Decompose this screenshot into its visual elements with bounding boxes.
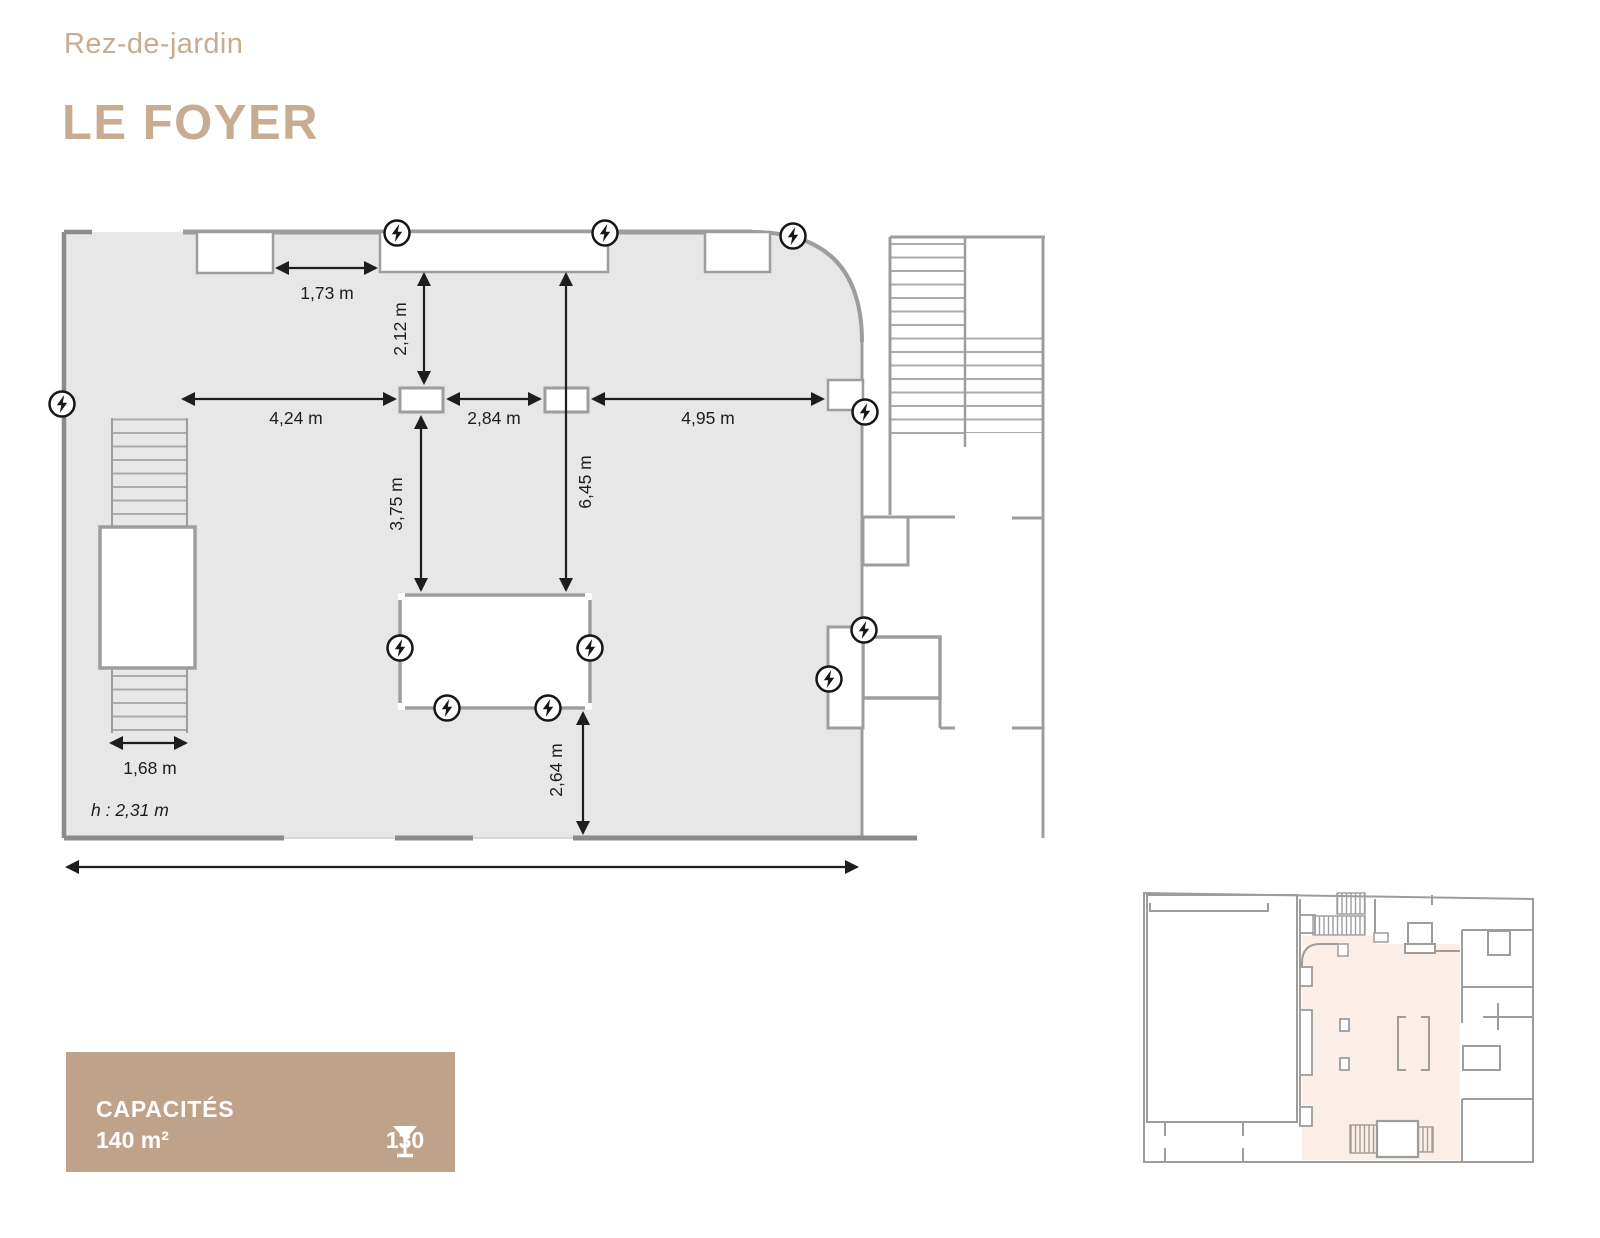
power-outlet-icon — [852, 618, 877, 643]
staircase-steps — [890, 237, 965, 437]
dim-label: 1,68 m — [123, 758, 177, 778]
minimap-stairs — [1313, 916, 1365, 935]
dim-label: 6,45 m — [575, 455, 595, 509]
minimap-stairs — [1337, 893, 1365, 914]
capacity-card-labels: CAPACITÉS 140 m² — [96, 1094, 234, 1156]
stair-landing — [100, 527, 195, 668]
power-outlet-icon — [853, 400, 878, 425]
dim-label: 1,73 m — [300, 283, 354, 303]
dim-label: 3,75 m — [386, 477, 406, 531]
minimap-stairs — [1350, 1125, 1377, 1153]
central-block — [398, 593, 592, 710]
capacity-area: 140 m² — [96, 1125, 234, 1156]
ceiling-height-note: h : 2,31 m — [91, 800, 169, 820]
staircase-left — [100, 418, 195, 733]
power-outlet-icon — [50, 392, 75, 417]
capacity-card: CAPACITÉS 140 m² 130 — [66, 1052, 455, 1172]
power-outlet-icon — [385, 221, 410, 246]
dim-label: 4,95 m — [681, 408, 735, 428]
wall-opening — [705, 232, 770, 272]
dim-label: 2,84 m — [467, 408, 521, 428]
minimap-wall-stub — [1300, 1010, 1312, 1075]
minimap-stairs — [1418, 1127, 1433, 1152]
staircase-steps — [965, 333, 1043, 433]
building-minimap — [1115, 875, 1555, 1175]
dim-label: 2,12 m — [390, 302, 410, 356]
wall-opening — [380, 232, 608, 272]
dim-label: 4,24 m — [269, 408, 323, 428]
minimap-wall-stub — [1300, 1107, 1312, 1126]
power-outlet-icon — [781, 224, 806, 249]
wall-opening — [197, 232, 273, 273]
power-outlet-icon — [388, 636, 413, 661]
power-outlet-icon — [578, 636, 603, 661]
staircase-steps — [112, 418, 187, 527]
dim-label: 2,64 m — [546, 743, 566, 797]
service-room — [863, 517, 908, 565]
floor-plan: 1,73 m 4,24 m 2,84 m 4,95 m 2,12 m 6,45 … — [0, 0, 1100, 900]
power-outlet-icon — [817, 667, 842, 692]
pillar — [400, 388, 443, 412]
capacity-title: CAPACITÉS — [96, 1094, 234, 1125]
power-outlet-icon — [536, 696, 561, 721]
martini-glass-icon — [392, 1125, 418, 1161]
service-room — [863, 637, 940, 698]
minimap-wall-stub — [1300, 967, 1312, 986]
power-outlet-icon — [435, 696, 460, 721]
power-outlet-icon — [593, 221, 618, 246]
capacity-standing: 130 — [370, 1125, 440, 1156]
staircase-steps — [112, 668, 187, 732]
